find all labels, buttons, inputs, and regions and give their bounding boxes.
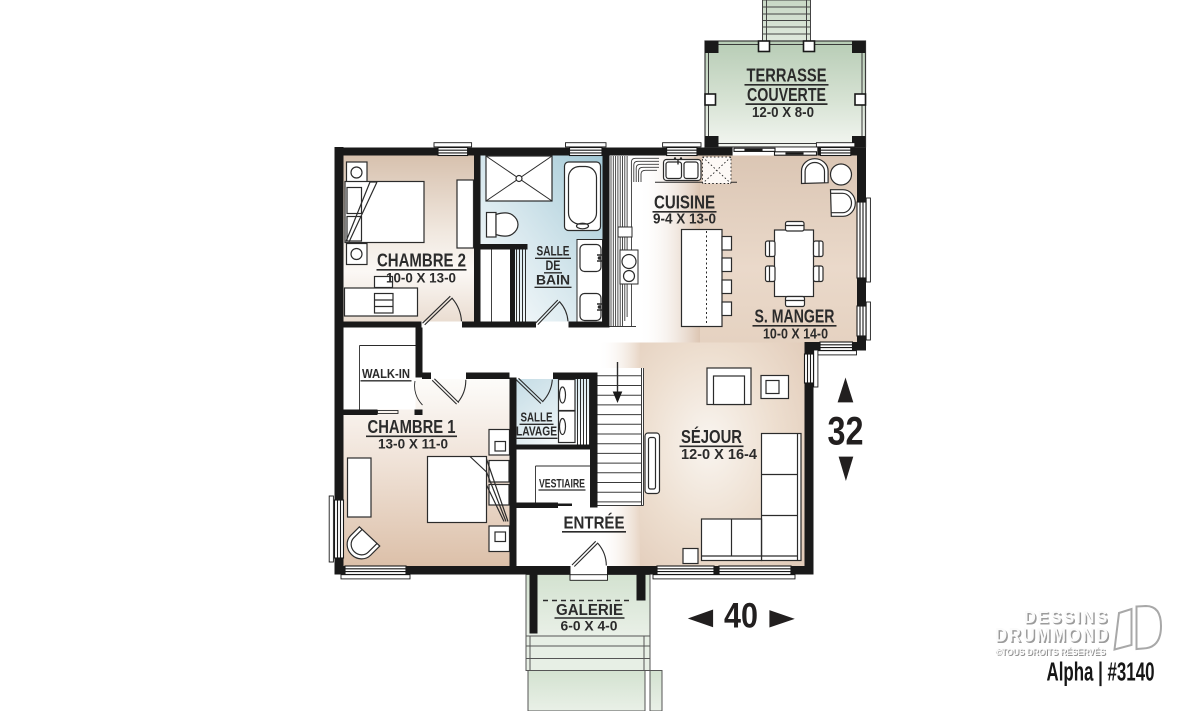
svg-text:40: 40 [724, 597, 758, 636]
svg-text:32: 32 [828, 410, 864, 454]
svg-text:10-0 X 13-0: 10-0 X 13-0 [386, 270, 456, 286]
svg-text:WALK-IN: WALK-IN [362, 367, 410, 381]
svg-text:SALLE: SALLE [521, 411, 553, 425]
svg-text:ENTRÉE: ENTRÉE [564, 512, 625, 533]
svg-text:GALERIE: GALERIE [556, 602, 623, 619]
svg-text:LAVAGE: LAVAGE [516, 425, 557, 439]
svg-text:10-0 X 14-0: 10-0 X 14-0 [763, 327, 828, 343]
svg-text:CHAMBRE 2: CHAMBRE 2 [377, 251, 466, 271]
svg-text:Alpha | #3140: Alpha | #3140 [1047, 659, 1155, 687]
svg-text:BAIN: BAIN [536, 273, 570, 288]
svg-text:CHAMBRE 1: CHAMBRE 1 [368, 417, 456, 437]
svg-text:S. MANGER: S. MANGER [755, 307, 835, 327]
svg-text:9-4 X 13-0: 9-4 X 13-0 [653, 212, 716, 228]
svg-text:SALLE: SALLE [537, 244, 570, 259]
svg-text:13-0 X 11-0: 13-0 X 11-0 [378, 436, 448, 452]
svg-text:12-0 X 8-0: 12-0 X 8-0 [752, 105, 814, 121]
svg-text:DRUMMOND: DRUMMOND [995, 625, 1110, 647]
svg-text:COUVERTE: COUVERTE [747, 85, 826, 105]
svg-text:TERRASSE: TERRASSE [747, 66, 827, 86]
svg-text:CUISINE: CUISINE [654, 193, 715, 213]
svg-text:6-0 X 4-0: 6-0 X 4-0 [561, 618, 618, 634]
svg-text:DE: DE [546, 258, 561, 273]
svg-text:12-0 X 16-4: 12-0 X 16-4 [681, 447, 757, 463]
svg-text:VESTIAIRE: VESTIAIRE [539, 479, 585, 491]
svg-text:SÉJOUR: SÉJOUR [681, 426, 742, 447]
